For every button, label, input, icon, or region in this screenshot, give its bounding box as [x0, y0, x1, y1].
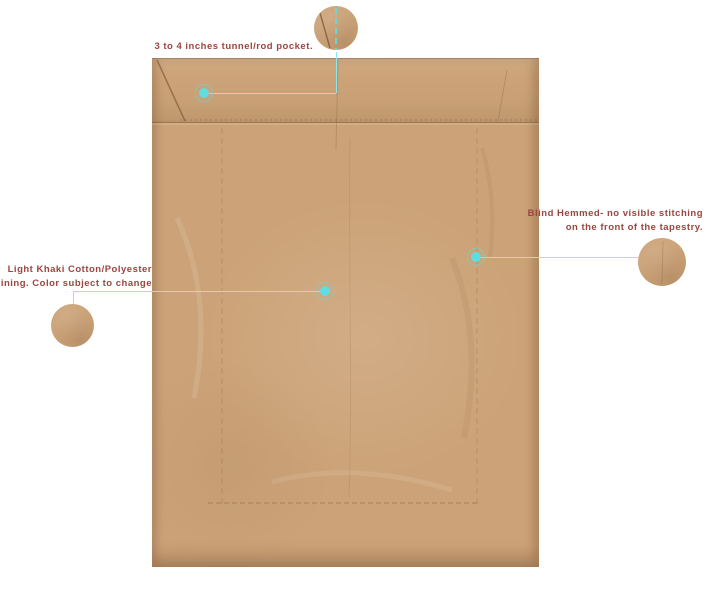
rod-pocket-label: 3 to 4 inches tunnel/rod pocket.	[154, 40, 313, 54]
blind-hem-inset-detail	[638, 238, 686, 286]
lining-marker-dot-fill	[320, 286, 330, 296]
blind-hem-marker-dot-fill	[471, 252, 481, 262]
rod-pocket-label-text: 3 to 4 inches tunnel/rod pocket.	[154, 40, 313, 54]
blind-hem-zoom-inset	[638, 238, 686, 286]
fabric-stitch-lines	[152, 58, 539, 567]
blind-hem-label: Blind Hemmed- no visible stitching on th…	[528, 207, 703, 235]
rod-pocket-callout-line-horizontal	[204, 93, 336, 94]
lining-callout-line-horizontal	[73, 291, 325, 292]
lining-label-line2: lining. Color subject to change	[0, 277, 152, 291]
rod-pocket-inset-detail	[314, 6, 358, 50]
lining-label: Light Khaki Cotton/Polyester lining. Col…	[0, 263, 152, 291]
rod-pocket-marker-dot-fill	[199, 88, 209, 98]
blind-hem-marker-dot	[467, 248, 485, 266]
tapestry-back-panel	[152, 58, 539, 567]
tapestry-annotation-image: 3 to 4 inches tunnel/rod pocket. Blind H…	[0, 0, 706, 600]
lining-callout-line-vertical	[73, 291, 74, 305]
rod-pocket-callout-line-vertical	[336, 52, 337, 93]
lining-zoom-inset	[51, 304, 94, 347]
lining-label-line1: Light Khaki Cotton/Polyester	[0, 263, 152, 277]
blind-hem-label-line2: on the front of the tapestry.	[528, 221, 703, 235]
lining-marker-dot	[316, 282, 334, 300]
blind-hem-label-line1: Blind Hemmed- no visible stitching	[528, 207, 703, 221]
rod-pocket-marker-dot	[195, 84, 213, 102]
blind-hem-callout-line-horizontal	[476, 257, 640, 258]
rod-pocket-zoom-inset	[314, 6, 358, 50]
